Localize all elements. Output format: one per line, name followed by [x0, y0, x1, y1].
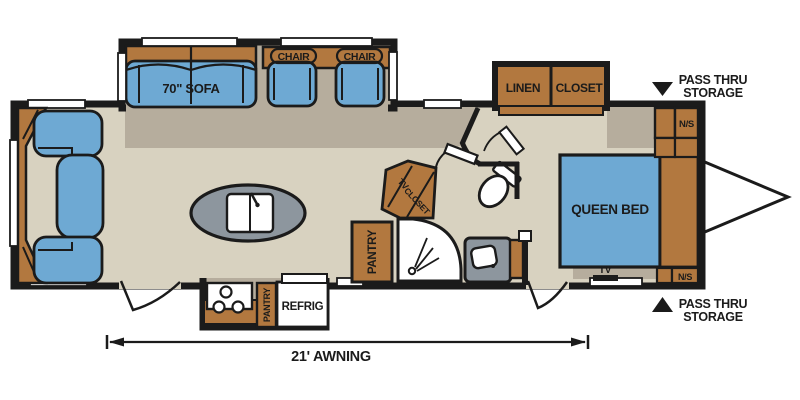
- sofa: 70" SOFA: [126, 46, 256, 107]
- arrow-up-icon: [652, 297, 673, 312]
- floorplan-svg: 70" SOFA CHAIR CHAIR LINEN CLOSET PA: [0, 0, 800, 400]
- burner-icon: [233, 302, 244, 313]
- ns-bottom-label: N/S: [678, 272, 692, 282]
- sofa-label: 70" SOFA: [162, 81, 220, 96]
- chair-right-label: CHAIR: [344, 51, 376, 63]
- arrow-down-icon: [652, 82, 673, 96]
- front-sofa-cushion-bottom: [34, 237, 102, 283]
- window-slide-right: [389, 52, 397, 100]
- bedroom-tv-label: TV: [599, 265, 612, 276]
- kitchen-bumpout: PANTRY REFRIG: [203, 274, 328, 327]
- chair-left-seat: [268, 62, 316, 106]
- shower-drain-icon: [409, 268, 415, 274]
- pass-thru-top: PASS THRU STORAGE: [652, 73, 748, 100]
- wardrobe-top: [655, 108, 675, 138]
- arrow-right-icon: [571, 338, 586, 347]
- refrig-label: REFRIG: [282, 301, 324, 313]
- refrigerator-lip: [282, 274, 327, 283]
- bedroom-cabinet: [675, 138, 698, 157]
- vanity-faucet: [491, 264, 495, 268]
- chair-left-label: CHAIR: [278, 51, 310, 63]
- entry-door-opening: [119, 279, 181, 289]
- ns-top-label: N/S: [679, 119, 694, 130]
- chair-right-seat: [336, 62, 384, 106]
- bedroom-shadow-top: [607, 107, 655, 148]
- window-slide-chairs: [281, 38, 372, 46]
- rv-floorplan: 70" SOFA CHAIR CHAIR LINEN CLOSET PA: [0, 0, 800, 400]
- divider-wall-jamb: [519, 231, 531, 241]
- pass-thru-bottom-line1: PASS THRU: [679, 297, 748, 311]
- linen-closet-base: [499, 106, 603, 115]
- bathroom-vanity: [465, 238, 523, 282]
- linen-label: LINEN: [506, 81, 541, 95]
- burner-icon: [214, 302, 225, 313]
- bedroom-cabinet: [655, 138, 675, 157]
- pass-thru-top-line1: PASS THRU: [679, 73, 748, 87]
- linen-closet: LINEN CLOSET: [495, 64, 607, 115]
- arrow-left-icon: [109, 338, 124, 347]
- pass-thru-bottom-line2: STORAGE: [683, 310, 743, 324]
- front-sofa-cushion-middle: [57, 155, 103, 238]
- front-sofa-cushion-top: [34, 111, 102, 156]
- kitchen-island: [191, 185, 305, 241]
- island-faucet-base: [255, 203, 259, 207]
- slide-shadow-living: [125, 107, 477, 148]
- pantry-main-label: PANTRY: [367, 229, 379, 274]
- pass-thru-bottom: PASS THRU STORAGE: [652, 297, 748, 324]
- vanity-cabinet: [510, 240, 523, 278]
- queen-bed-label: QUEEN BED: [571, 202, 649, 217]
- awning-label: 21' AWNING: [291, 349, 371, 365]
- awning-dimension: 21' AWNING: [107, 335, 588, 365]
- pantry-kitchen-label: PANTRY: [262, 288, 272, 322]
- headboard: [660, 155, 698, 267]
- window-slide-sofa: [142, 38, 237, 46]
- pass-thru-top-line2: STORAGE: [683, 86, 743, 100]
- tv-closet-cabinet: TV CLOSET: [382, 161, 436, 218]
- linen-closet-label: CLOSET: [556, 81, 604, 95]
- burner-icon: [221, 287, 232, 298]
- window-slide-left: [118, 53, 126, 101]
- hitch-tongue: [700, 160, 788, 234]
- bedroom-cabinet-bottom: [657, 268, 672, 283]
- window-top-middle: [424, 100, 461, 108]
